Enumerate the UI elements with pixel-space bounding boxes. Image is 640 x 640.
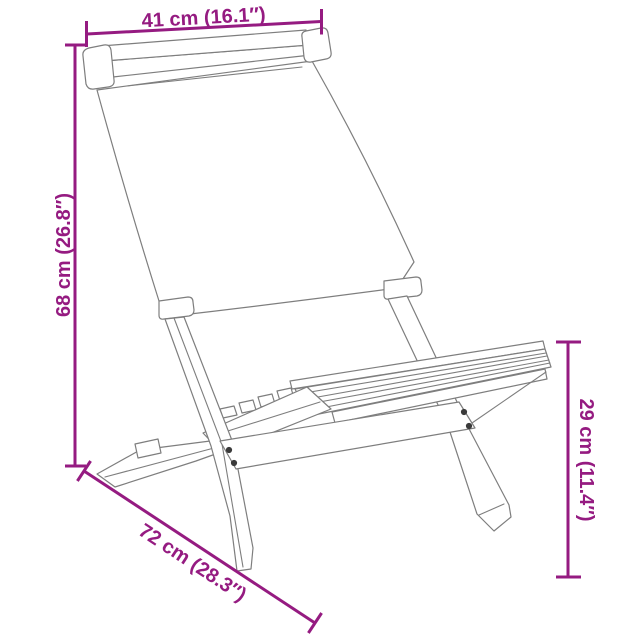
dimension-right-seat-height: 29 cm (11.4″) — [556, 342, 597, 577]
pivot-screw — [466, 423, 472, 429]
right-back-post-cap — [384, 277, 422, 299]
top-rail-right-cap — [302, 28, 331, 62]
dimension-tick — [77, 461, 90, 481]
chair-drawing — [83, 28, 551, 571]
left-foot-runner — [97, 440, 224, 487]
dimension-label-top-width: 41 cm (16.1″) — [141, 4, 266, 33]
dimension-tick — [308, 613, 321, 633]
dimension-line — [84, 471, 315, 623]
top-rail-left-cap — [83, 45, 114, 89]
dimension-label-right-seat-height: 29 cm (11.4″) — [575, 399, 597, 522]
dimension-diagram: 41 cm (16.1″) 68 cm (26.8″) 29 cm (11.4″… — [0, 0, 640, 640]
dimension-left-height: 68 cm (26.8″) — [53, 45, 86, 466]
pivot-screw — [231, 460, 237, 466]
dimension-label-left-height: 68 cm (26.8″) — [53, 193, 75, 317]
pivot-screw — [226, 447, 232, 453]
backrest-fabric — [97, 61, 414, 316]
left-back-post-cap — [159, 297, 194, 319]
pivot-screw — [461, 409, 467, 415]
